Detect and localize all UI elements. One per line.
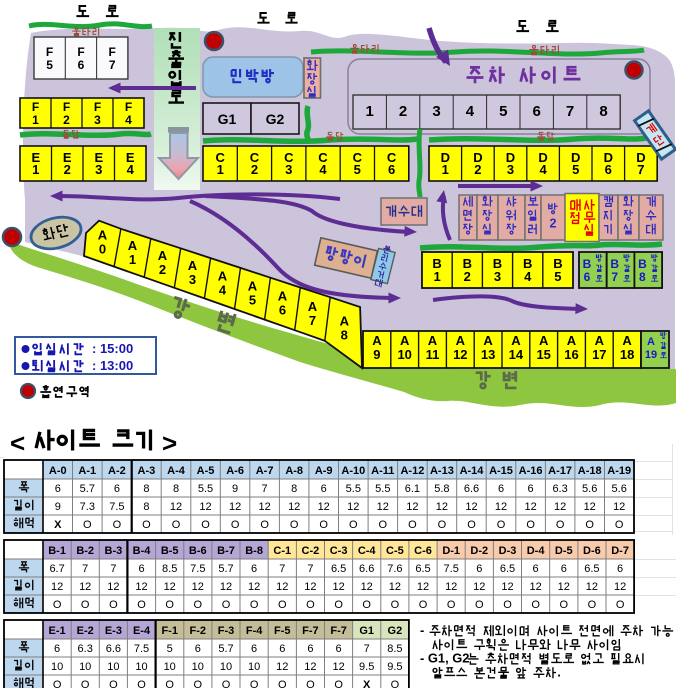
svg-text:O: O bbox=[531, 599, 540, 611]
svg-text:O: O bbox=[165, 679, 174, 688]
svg-text:5.5: 5.5 bbox=[346, 483, 361, 495]
svg-text:5: 5 bbox=[249, 293, 256, 308]
svg-text:8: 8 bbox=[173, 483, 179, 495]
svg-text:12: 12 bbox=[614, 581, 626, 593]
svg-text:2: 2 bbox=[474, 162, 481, 177]
svg-text:6: 6 bbox=[528, 483, 534, 495]
svg-text:9.5: 9.5 bbox=[359, 661, 374, 673]
svg-text:O: O bbox=[231, 519, 240, 531]
svg-text:F-7: F-7 bbox=[302, 625, 319, 637]
svg-text:12: 12 bbox=[220, 581, 232, 593]
svg-text:12: 12 bbox=[276, 581, 288, 593]
svg-text:B-8: B-8 bbox=[245, 545, 263, 557]
svg-text:A-17: A-17 bbox=[548, 465, 572, 477]
svg-text:17: 17 bbox=[592, 347, 606, 362]
svg-text:6.5: 6.5 bbox=[331, 563, 346, 575]
svg-text:D-7: D-7 bbox=[611, 545, 629, 557]
svg-text:F-2: F-2 bbox=[190, 625, 207, 637]
svg-text:12: 12 bbox=[51, 581, 63, 593]
svg-text:C-6: C-6 bbox=[414, 545, 432, 557]
svg-text:6: 6 bbox=[251, 643, 257, 655]
svg-text:2: 2 bbox=[64, 162, 71, 177]
svg-text:6: 6 bbox=[476, 563, 482, 575]
svg-text:3: 3 bbox=[94, 113, 101, 127]
svg-text:O: O bbox=[83, 519, 92, 531]
svg-text:8.5: 8.5 bbox=[162, 563, 177, 575]
svg-text:8: 8 bbox=[341, 327, 348, 342]
svg-text:O: O bbox=[222, 599, 231, 611]
svg-text:A-3: A-3 bbox=[138, 465, 156, 477]
svg-text:F: F bbox=[125, 100, 132, 114]
svg-text:O: O bbox=[391, 599, 400, 611]
svg-text:2: 2 bbox=[549, 216, 556, 230]
svg-text:6.6: 6.6 bbox=[464, 483, 479, 495]
svg-text:10: 10 bbox=[192, 661, 204, 673]
svg-text:12: 12 bbox=[170, 501, 182, 513]
svg-text:12: 12 bbox=[586, 581, 598, 593]
svg-text:7: 7 bbox=[262, 483, 268, 495]
svg-text:A: A bbox=[158, 248, 168, 263]
svg-text:F: F bbox=[32, 100, 39, 114]
svg-text:1: 1 bbox=[366, 103, 374, 120]
svg-text:6: 6 bbox=[78, 58, 85, 72]
svg-text:2: 2 bbox=[464, 269, 471, 284]
svg-text:5.5: 5.5 bbox=[198, 483, 213, 495]
svg-text:12: 12 bbox=[406, 501, 418, 513]
svg-text:7.3: 7.3 bbox=[80, 501, 95, 513]
svg-text:5.7: 5.7 bbox=[80, 483, 95, 495]
svg-text:G2: G2 bbox=[388, 625, 403, 637]
svg-text:A: A bbox=[622, 333, 632, 348]
svg-text:12: 12 bbox=[304, 581, 316, 593]
svg-text:F: F bbox=[94, 100, 101, 114]
svg-text:12: 12 bbox=[199, 501, 211, 513]
svg-text:F: F bbox=[109, 45, 116, 59]
svg-text:6.7: 6.7 bbox=[49, 563, 64, 575]
svg-text:B: B bbox=[610, 257, 619, 271]
svg-text:A-1: A-1 bbox=[78, 465, 96, 477]
svg-text:C-5: C-5 bbox=[386, 545, 404, 557]
svg-text:6.3: 6.3 bbox=[552, 483, 567, 495]
svg-text:5: 5 bbox=[499, 103, 507, 120]
svg-text:12: 12 bbox=[389, 581, 401, 593]
svg-text:6: 6 bbox=[251, 563, 257, 575]
svg-text:O: O bbox=[53, 599, 62, 611]
svg-text:9: 9 bbox=[232, 483, 238, 495]
svg-text:19: 19 bbox=[645, 349, 657, 361]
svg-text:O: O bbox=[222, 679, 231, 688]
svg-text:X: X bbox=[363, 679, 371, 688]
svg-text:6: 6 bbox=[54, 643, 60, 655]
svg-text:O: O bbox=[334, 599, 343, 611]
svg-text:12: 12 bbox=[473, 581, 485, 593]
svg-text:: 13:00: : 13:00 bbox=[92, 358, 133, 373]
svg-text:7: 7 bbox=[309, 313, 316, 328]
svg-text:6.3: 6.3 bbox=[78, 643, 93, 655]
svg-text:10: 10 bbox=[79, 661, 91, 673]
svg-text:O: O bbox=[362, 599, 371, 611]
svg-text:12: 12 bbox=[288, 501, 300, 513]
svg-text:O: O bbox=[109, 599, 118, 611]
svg-text:10: 10 bbox=[164, 661, 176, 673]
svg-text:O: O bbox=[137, 599, 146, 611]
svg-text:6: 6 bbox=[561, 563, 567, 575]
svg-text:C-1: C-1 bbox=[273, 545, 291, 557]
svg-text:G2: G2 bbox=[266, 111, 285, 127]
svg-text:1: 1 bbox=[442, 162, 449, 177]
svg-text:A-8: A-8 bbox=[285, 465, 303, 477]
svg-text:12: 12 bbox=[258, 501, 270, 513]
svg-text:A-7: A-7 bbox=[256, 465, 274, 477]
svg-text:E-2: E-2 bbox=[77, 625, 94, 637]
svg-text:A: A bbox=[188, 258, 198, 273]
svg-text:8: 8 bbox=[639, 270, 646, 284]
svg-text:O: O bbox=[260, 519, 269, 531]
svg-text:12: 12 bbox=[248, 581, 260, 593]
svg-text:O: O bbox=[615, 519, 624, 531]
svg-text:E-4: E-4 bbox=[133, 625, 151, 637]
svg-text:O: O bbox=[81, 679, 90, 688]
svg-text:10: 10 bbox=[397, 347, 411, 362]
svg-text:O: O bbox=[391, 679, 400, 688]
svg-text:A-15: A-15 bbox=[489, 465, 513, 477]
svg-text:0: 0 bbox=[99, 242, 106, 257]
svg-text:F: F bbox=[63, 100, 70, 114]
svg-text:12: 12 bbox=[79, 581, 91, 593]
svg-text:6: 6 bbox=[605, 162, 612, 177]
svg-text:10: 10 bbox=[51, 661, 63, 673]
svg-text:6: 6 bbox=[195, 643, 201, 655]
svg-text:6: 6 bbox=[138, 563, 144, 575]
svg-text:4: 4 bbox=[219, 282, 227, 297]
svg-text:C-2: C-2 bbox=[302, 545, 320, 557]
svg-text:6: 6 bbox=[114, 483, 120, 495]
svg-text:7.5: 7.5 bbox=[134, 643, 149, 655]
svg-text:O: O bbox=[497, 519, 506, 531]
svg-text:2: 2 bbox=[399, 103, 407, 120]
svg-text:A: A bbox=[128, 238, 138, 253]
svg-text:F-4: F-4 bbox=[246, 625, 263, 637]
svg-text:4: 4 bbox=[524, 269, 532, 284]
svg-text:12: 12 bbox=[229, 501, 241, 513]
svg-text:4: 4 bbox=[125, 113, 132, 127]
svg-text:C-4: C-4 bbox=[358, 545, 377, 557]
svg-text:A: A bbox=[456, 333, 466, 348]
svg-text:7.5: 7.5 bbox=[109, 501, 124, 513]
svg-text:A-10: A-10 bbox=[341, 465, 365, 477]
svg-text:6: 6 bbox=[55, 483, 61, 495]
svg-text:A: A bbox=[278, 289, 288, 304]
svg-text:O: O bbox=[526, 519, 535, 531]
svg-text:8: 8 bbox=[599, 103, 607, 120]
svg-text:O: O bbox=[142, 519, 151, 531]
svg-text:6: 6 bbox=[533, 563, 539, 575]
svg-text:5.6: 5.6 bbox=[582, 483, 597, 495]
svg-text:O: O bbox=[172, 519, 181, 531]
svg-text:B: B bbox=[638, 257, 647, 271]
svg-text:12: 12 bbox=[453, 347, 467, 362]
svg-text:O: O bbox=[201, 519, 210, 531]
svg-text:B-5: B-5 bbox=[161, 545, 179, 557]
svg-text:- G1, G2: - G1, G2 bbox=[420, 651, 469, 666]
svg-text:B-4: B-4 bbox=[133, 545, 152, 557]
svg-text:3: 3 bbox=[189, 272, 196, 287]
svg-text:F-5: F-5 bbox=[274, 625, 291, 637]
svg-text:F: F bbox=[77, 45, 84, 59]
svg-text:6.5: 6.5 bbox=[584, 563, 599, 575]
svg-text:A: A bbox=[428, 333, 438, 348]
svg-text:5.6: 5.6 bbox=[612, 483, 627, 495]
svg-text:O: O bbox=[278, 679, 287, 688]
svg-text:12: 12 bbox=[495, 501, 507, 513]
svg-text:3: 3 bbox=[507, 162, 514, 177]
svg-text:8: 8 bbox=[143, 483, 149, 495]
svg-text:O: O bbox=[194, 679, 203, 688]
svg-text:B-3: B-3 bbox=[105, 545, 123, 557]
svg-text:E-3: E-3 bbox=[105, 625, 122, 637]
svg-text:1: 1 bbox=[129, 252, 136, 267]
svg-text:O: O bbox=[585, 519, 594, 531]
svg-text:F-7: F-7 bbox=[330, 625, 347, 637]
svg-text:4: 4 bbox=[539, 162, 547, 177]
svg-text:O: O bbox=[616, 599, 625, 611]
svg-text:6: 6 bbox=[321, 483, 327, 495]
svg-text:3: 3 bbox=[285, 162, 292, 177]
svg-text:12: 12 bbox=[524, 501, 536, 513]
svg-text:12: 12 bbox=[164, 581, 176, 593]
svg-text:6.1: 6.1 bbox=[405, 483, 420, 495]
svg-text:6: 6 bbox=[617, 563, 623, 575]
svg-text:O: O bbox=[419, 599, 428, 611]
svg-text:5: 5 bbox=[46, 58, 53, 72]
svg-text:A-16: A-16 bbox=[519, 465, 543, 477]
svg-text:7.5: 7.5 bbox=[190, 563, 205, 575]
svg-text:12: 12 bbox=[465, 501, 477, 513]
svg-text:2: 2 bbox=[63, 113, 70, 127]
svg-text:A-6: A-6 bbox=[226, 465, 244, 477]
svg-text:7: 7 bbox=[110, 563, 116, 575]
svg-text:O: O bbox=[503, 599, 512, 611]
svg-text:11: 11 bbox=[426, 347, 440, 362]
svg-text:12: 12 bbox=[332, 581, 344, 593]
svg-text:O: O bbox=[438, 519, 447, 531]
svg-text:A: A bbox=[647, 336, 655, 348]
svg-text:-: - bbox=[420, 623, 428, 638]
svg-text:7: 7 bbox=[637, 162, 644, 177]
svg-text:12: 12 bbox=[361, 581, 373, 593]
svg-text:18: 18 bbox=[620, 347, 634, 362]
svg-text:2: 2 bbox=[251, 162, 258, 177]
svg-text:O: O bbox=[306, 599, 315, 611]
svg-text:A: A bbox=[595, 333, 605, 348]
svg-text:12: 12 bbox=[192, 581, 204, 593]
svg-text:7.6: 7.6 bbox=[387, 563, 402, 575]
svg-text:A-13: A-13 bbox=[430, 465, 454, 477]
svg-text:6: 6 bbox=[307, 643, 313, 655]
svg-text:4: 4 bbox=[466, 103, 475, 120]
svg-text:A: A bbox=[511, 333, 521, 348]
svg-text:7: 7 bbox=[611, 270, 618, 284]
svg-text:7: 7 bbox=[307, 563, 313, 575]
svg-text:6: 6 bbox=[533, 103, 541, 120]
svg-text:12: 12 bbox=[304, 661, 316, 673]
svg-text:6: 6 bbox=[584, 270, 591, 284]
svg-text:.: . bbox=[557, 665, 561, 680]
svg-text:F-1: F-1 bbox=[161, 625, 178, 637]
svg-text:A-18: A-18 bbox=[578, 465, 602, 477]
svg-text:4: 4 bbox=[319, 162, 327, 177]
svg-text:A-0: A-0 bbox=[49, 465, 67, 477]
svg-text:: 15:00: : 15:00 bbox=[92, 341, 133, 356]
svg-text:3: 3 bbox=[432, 103, 440, 120]
svg-text:O: O bbox=[81, 599, 90, 611]
svg-text:A-14: A-14 bbox=[460, 465, 485, 477]
svg-text:O: O bbox=[137, 679, 146, 688]
svg-text:9: 9 bbox=[55, 501, 61, 513]
svg-text:A-4: A-4 bbox=[167, 465, 186, 477]
svg-text:B-7: B-7 bbox=[217, 545, 235, 557]
svg-text:6: 6 bbox=[336, 643, 342, 655]
svg-text:12: 12 bbox=[445, 581, 457, 593]
svg-text:6.6: 6.6 bbox=[106, 643, 121, 655]
svg-text:A: A bbox=[483, 333, 493, 348]
svg-text:O: O bbox=[290, 519, 299, 531]
svg-text:8: 8 bbox=[143, 501, 149, 513]
svg-text:12: 12 bbox=[584, 501, 596, 513]
svg-text:O: O bbox=[250, 679, 259, 688]
svg-text:O: O bbox=[278, 599, 287, 611]
svg-text:6: 6 bbox=[498, 483, 504, 495]
svg-text:A: A bbox=[308, 299, 318, 314]
svg-text:B-1: B-1 bbox=[48, 545, 66, 557]
svg-text:D-6: D-6 bbox=[583, 545, 601, 557]
svg-text:O: O bbox=[475, 599, 484, 611]
svg-text:3: 3 bbox=[95, 162, 102, 177]
svg-text:E-1: E-1 bbox=[49, 625, 66, 637]
svg-text:O: O bbox=[113, 519, 122, 531]
svg-text:A: A bbox=[400, 333, 410, 348]
svg-text:5.5: 5.5 bbox=[375, 483, 390, 495]
svg-text:O: O bbox=[194, 599, 203, 611]
svg-text:4: 4 bbox=[127, 162, 135, 177]
svg-text:6: 6 bbox=[279, 643, 285, 655]
svg-text:7.5: 7.5 bbox=[444, 563, 459, 575]
svg-text:5: 5 bbox=[572, 162, 579, 177]
svg-text:A: A bbox=[248, 279, 258, 294]
svg-text:A-19: A-19 bbox=[607, 465, 631, 477]
svg-text:5.7: 5.7 bbox=[218, 563, 233, 575]
svg-text:B: B bbox=[583, 257, 592, 271]
svg-text:A-11: A-11 bbox=[371, 465, 394, 477]
svg-text:7: 7 bbox=[566, 103, 574, 120]
svg-text:12: 12 bbox=[135, 581, 147, 593]
svg-text:F-3: F-3 bbox=[218, 625, 235, 637]
svg-text:A: A bbox=[218, 268, 228, 283]
svg-text:15: 15 bbox=[536, 347, 550, 362]
svg-text:12: 12 bbox=[377, 501, 389, 513]
svg-text:12: 12 bbox=[613, 501, 625, 513]
svg-text:G1: G1 bbox=[218, 111, 237, 127]
svg-text:1: 1 bbox=[433, 269, 440, 284]
svg-text:O: O bbox=[250, 599, 259, 611]
svg-text:A-9: A-9 bbox=[315, 465, 333, 477]
svg-text:B-2: B-2 bbox=[76, 545, 94, 557]
svg-text:16: 16 bbox=[564, 347, 578, 362]
svg-text:O: O bbox=[467, 519, 476, 531]
svg-text:5: 5 bbox=[554, 269, 561, 284]
svg-text:7: 7 bbox=[109, 58, 116, 72]
svg-text:1: 1 bbox=[32, 162, 39, 177]
svg-text:1: 1 bbox=[32, 113, 39, 127]
svg-text:O: O bbox=[349, 519, 358, 531]
svg-text:5: 5 bbox=[167, 643, 173, 655]
svg-text:A-12: A-12 bbox=[400, 465, 424, 477]
svg-text:D-2: D-2 bbox=[470, 545, 488, 557]
svg-text:7: 7 bbox=[279, 563, 285, 575]
svg-text:6.5: 6.5 bbox=[415, 563, 430, 575]
svg-text:5.8: 5.8 bbox=[434, 483, 449, 495]
svg-text:O: O bbox=[408, 519, 417, 531]
svg-text:10: 10 bbox=[248, 661, 260, 673]
svg-text:12: 12 bbox=[276, 661, 288, 673]
svg-text:5: 5 bbox=[354, 162, 361, 177]
svg-text:12: 12 bbox=[558, 581, 570, 593]
svg-text:8: 8 bbox=[291, 483, 297, 495]
svg-text:O: O bbox=[447, 599, 456, 611]
svg-text:O: O bbox=[109, 679, 118, 688]
svg-text:10: 10 bbox=[220, 661, 232, 673]
svg-text:O: O bbox=[165, 599, 174, 611]
svg-text:O: O bbox=[379, 519, 388, 531]
svg-text:F: F bbox=[46, 45, 53, 59]
svg-text:O: O bbox=[334, 679, 343, 688]
svg-text:A-2: A-2 bbox=[108, 465, 126, 477]
svg-text:O: O bbox=[53, 679, 62, 688]
svg-text:<: < bbox=[10, 428, 25, 458]
svg-text:12: 12 bbox=[332, 661, 344, 673]
svg-text:A-5: A-5 bbox=[197, 465, 215, 477]
svg-text:8.5: 8.5 bbox=[387, 643, 402, 655]
svg-text:6.6: 6.6 bbox=[359, 563, 374, 575]
svg-text:6: 6 bbox=[279, 303, 286, 318]
svg-text:O: O bbox=[319, 519, 328, 531]
svg-text:12: 12 bbox=[347, 501, 359, 513]
svg-text:A: A bbox=[539, 333, 549, 348]
svg-text:A: A bbox=[567, 333, 577, 348]
svg-text:>: > bbox=[162, 428, 177, 458]
svg-text:6.5: 6.5 bbox=[500, 563, 515, 575]
svg-text:5.7: 5.7 bbox=[218, 643, 233, 655]
svg-text:12: 12 bbox=[554, 501, 566, 513]
svg-text:A: A bbox=[340, 313, 350, 328]
svg-text:D-4: D-4 bbox=[527, 545, 546, 557]
svg-text:12: 12 bbox=[436, 501, 448, 513]
svg-text:B-6: B-6 bbox=[189, 545, 207, 557]
svg-text:12: 12 bbox=[417, 581, 429, 593]
svg-text:X: X bbox=[54, 519, 62, 531]
svg-text:6: 6 bbox=[388, 162, 395, 177]
svg-text:12: 12 bbox=[318, 501, 330, 513]
svg-text:A: A bbox=[372, 333, 382, 348]
svg-text:2: 2 bbox=[159, 262, 166, 277]
svg-text:G1: G1 bbox=[359, 625, 374, 637]
svg-text:7: 7 bbox=[82, 563, 88, 575]
svg-text:12: 12 bbox=[501, 581, 513, 593]
svg-text:12: 12 bbox=[529, 581, 541, 593]
svg-text:14: 14 bbox=[509, 347, 524, 362]
svg-text:9.5: 9.5 bbox=[387, 661, 402, 673]
svg-text:O: O bbox=[556, 519, 565, 531]
